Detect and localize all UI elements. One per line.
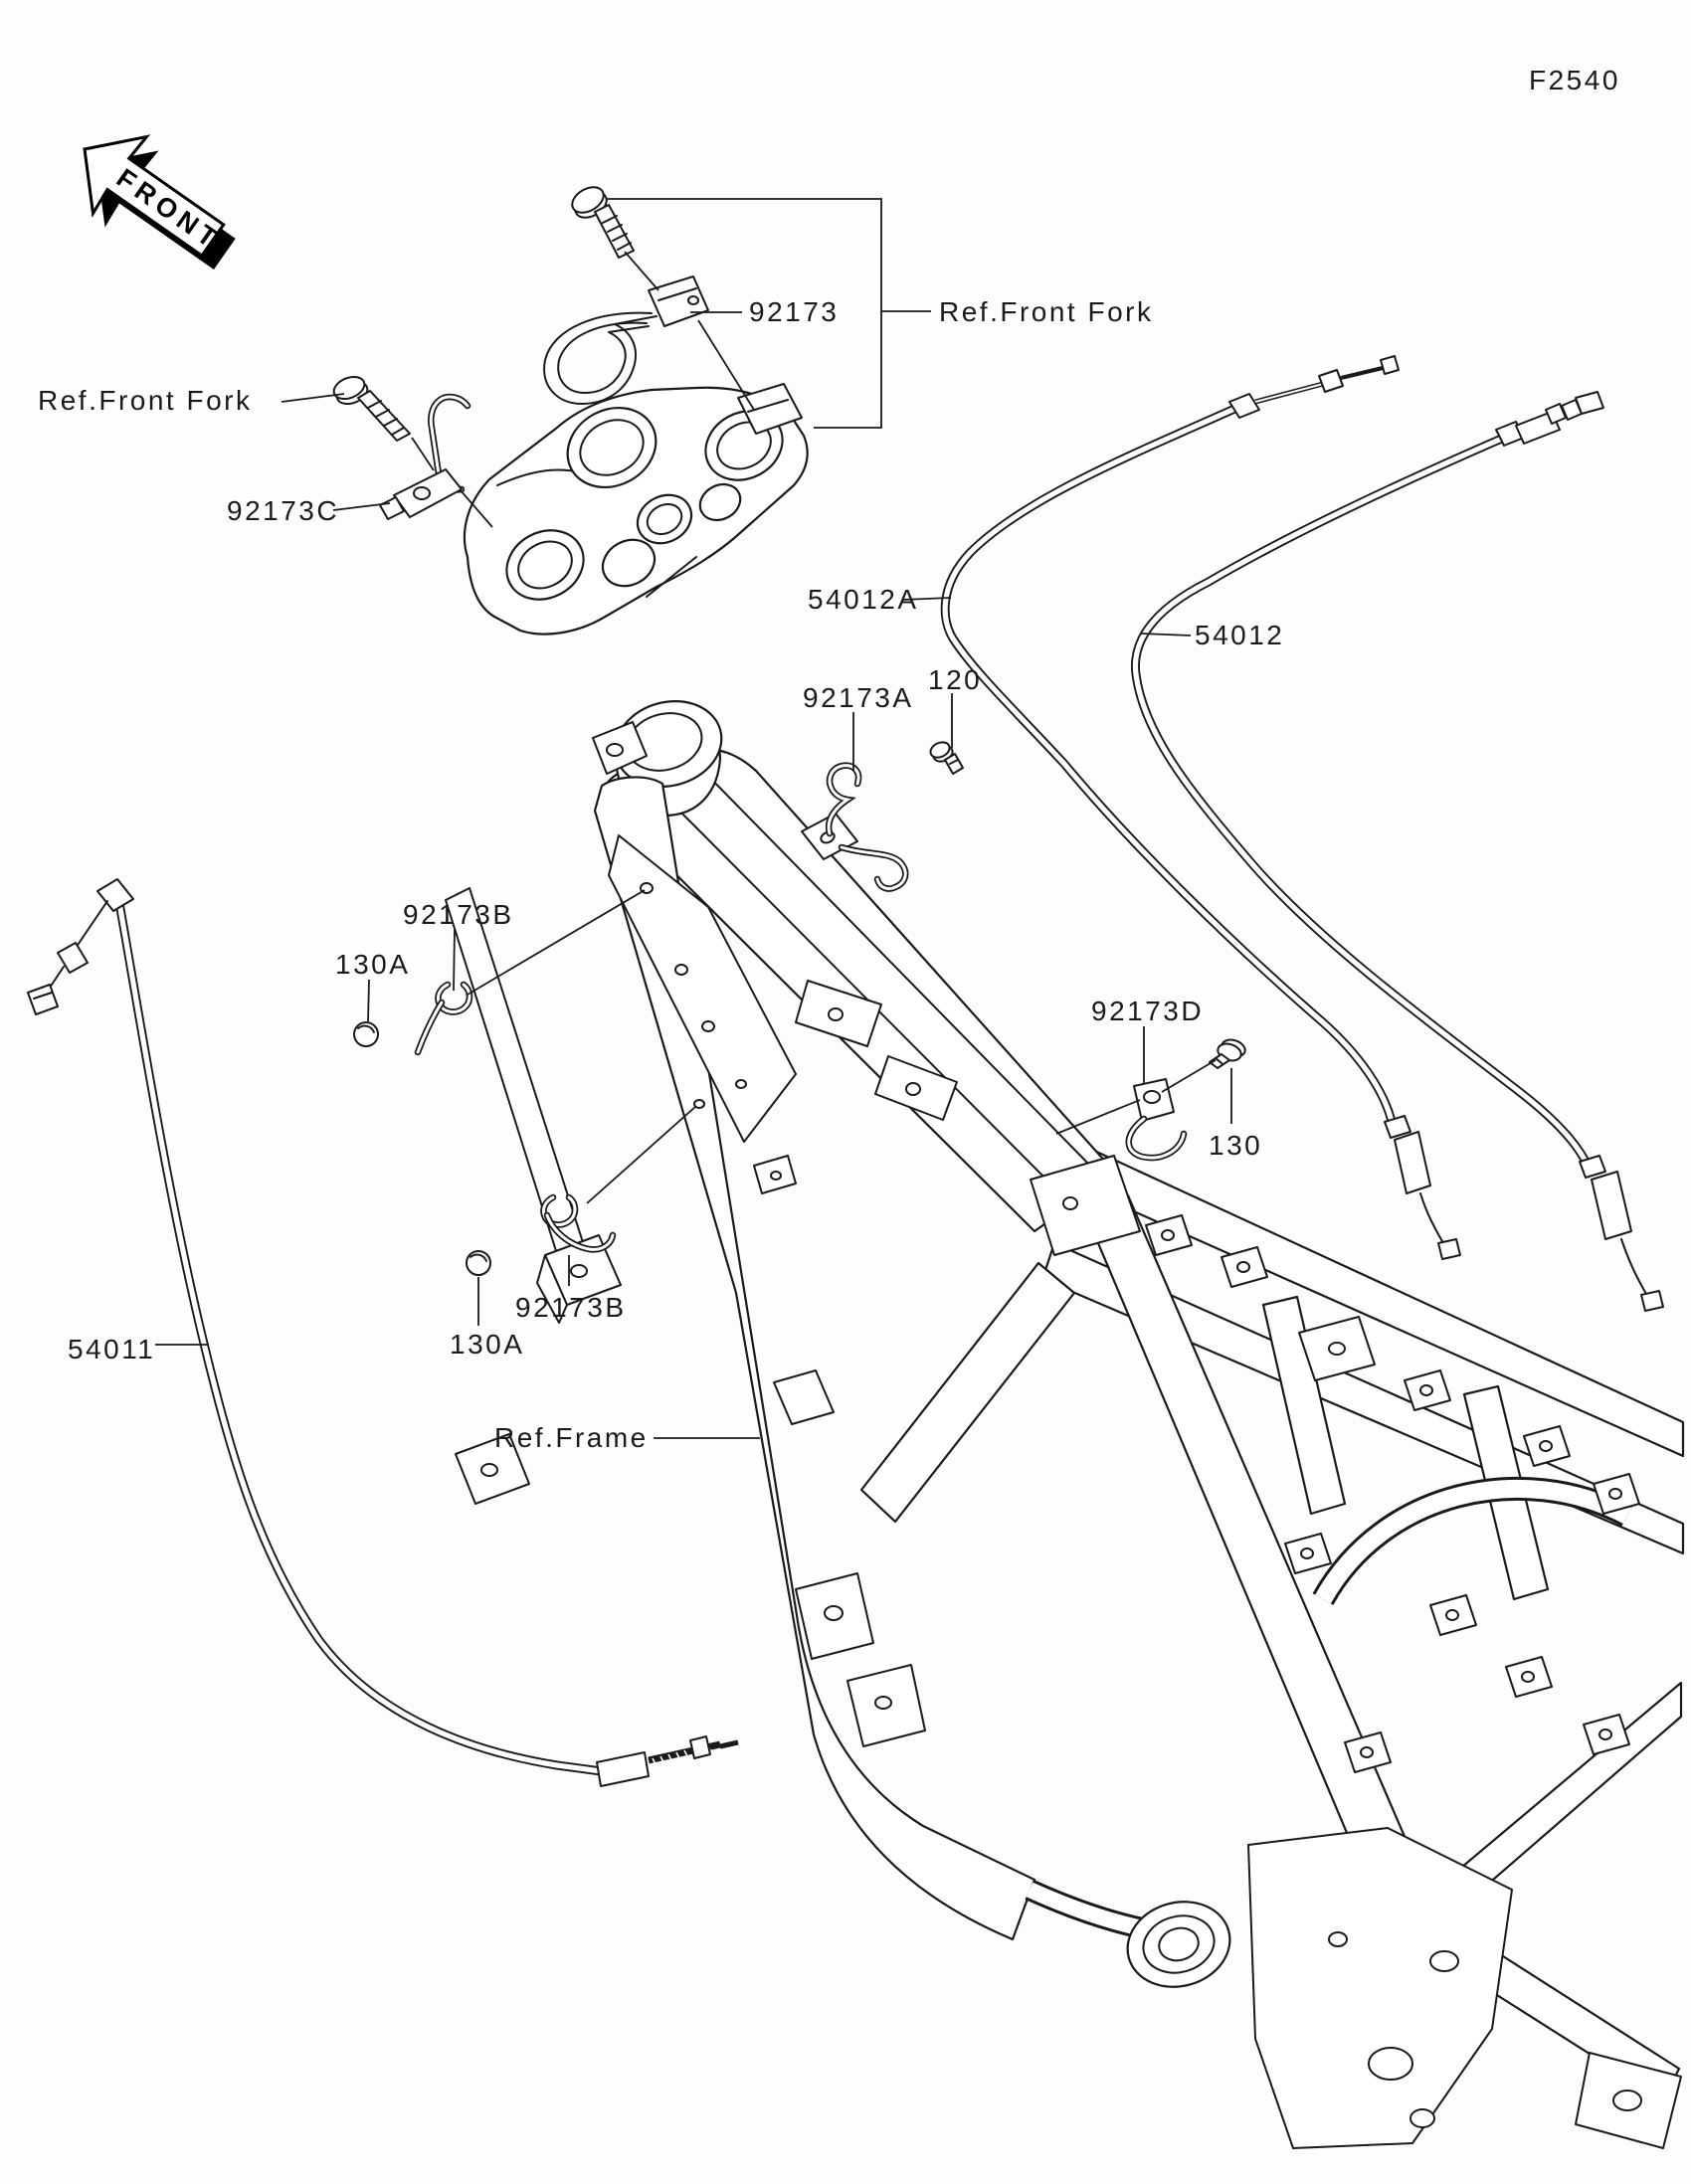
label-92173: 92173 [749, 296, 839, 327]
bolt-130A-1 [354, 1022, 378, 1046]
leader-ref-front-fork-left [282, 394, 344, 402]
bolt-130A-2 [467, 1251, 490, 1275]
clamp-92173-loop [544, 276, 708, 404]
parts-diagram-page: FRONT F2540 [0, 0, 1691, 2184]
label-92173B-1: 92173B [403, 899, 514, 930]
cable-54011 [28, 879, 738, 1786]
holder-bolt [568, 182, 634, 258]
clamp-92173B-1 [418, 985, 470, 1052]
frame-main-section [446, 689, 1512, 2148]
label-92173A: 92173A [803, 682, 914, 713]
frame-swingarm-pivot [1118, 1828, 1512, 2148]
label-ref-front-fork-left: Ref.Front Fork [38, 385, 252, 416]
label-130A-1: 130A [335, 949, 410, 980]
label-92173C: 92173C [227, 495, 339, 526]
label-92173B-2: 92173B [515, 1292, 627, 1323]
figure-code: F2540 [1529, 65, 1620, 95]
cable-54012 [1135, 392, 1663, 1311]
label-92173D: 92173D [1091, 996, 1204, 1026]
parts-diagram: FRONT F2540 [0, 0, 1691, 2184]
bolt-130 [1210, 1037, 1247, 1068]
label-54012: 54012 [1195, 620, 1284, 650]
leader-130A-1 [368, 980, 369, 1021]
label-130A-2: 130A [450, 1329, 524, 1360]
label-54012A: 54012A [808, 584, 919, 615]
bolt-120 [928, 739, 963, 774]
label-ref-front-fork-top: Ref.Front Fork [939, 296, 1153, 327]
clamp-92173C [380, 397, 492, 527]
clamp-92173D [1129, 1079, 1184, 1158]
label-130: 130 [1209, 1130, 1262, 1161]
leader-92173D [1056, 1026, 1216, 1134]
label-120: 120 [928, 664, 982, 695]
handlebar-holder-assembly [465, 182, 808, 635]
front-fork-bolt-left [330, 373, 410, 441]
label-ref-frame: Ref.Frame [494, 1422, 649, 1453]
label-54011: 54011 [68, 1334, 155, 1365]
front-direction-arrow: FRONT [57, 111, 251, 292]
